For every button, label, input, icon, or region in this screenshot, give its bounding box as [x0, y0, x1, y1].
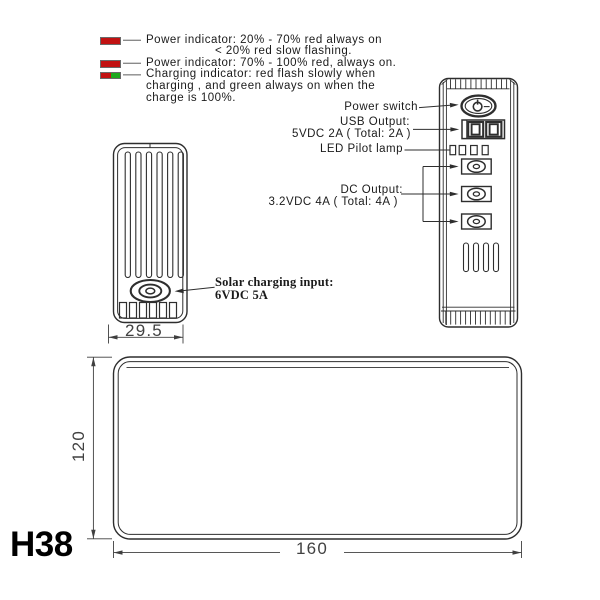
dc-output-jack-2 [462, 187, 492, 202]
led-pilot-lamps-icon [450, 146, 488, 155]
legend-dashes [123, 40, 141, 75]
dc-output-jack-1 [462, 159, 492, 174]
dc-output-label-line-1: DC Output: [340, 184, 403, 196]
technical-drawing-page: Power indicator: 20% - 70% red always on… [0, 0, 600, 600]
solar-input-label-line-1: Solar charging input: [215, 276, 334, 289]
legend-entry-1-line-2: < 20% red slow flashing. [215, 45, 352, 57]
usb-ports-icon [462, 120, 505, 139]
side-lower-slots [464, 243, 499, 272]
side-view-drawing [440, 79, 518, 328]
dc-output-label-line-2: 3.2VDC 4A ( Total: 4A ) [268, 196, 398, 208]
front-width-dimension-value: 29.5 [113, 322, 175, 339]
solar-input-label-line-2: 6VDC 5A [215, 289, 268, 302]
green-swatch-fill [111, 73, 121, 79]
dc-output-jack-3 [462, 214, 492, 229]
usb-output-label-line-1: USB Output: [340, 116, 410, 128]
solar-input-jack-icon [131, 280, 170, 302]
legend-entry-3-line-2: charging , and green always on when the [146, 80, 375, 92]
red-swatch-fill [101, 38, 120, 44]
front-vent-slots [125, 152, 183, 278]
legend-entry-3-line-1: Charging indicator: red flash slowly whe… [146, 68, 376, 80]
red-swatch-fill [101, 61, 120, 67]
usb-output-label-line-2: 5VDC 2A ( Total: 2A ) [292, 128, 411, 140]
model-code: H38 [10, 528, 73, 562]
top-view-drawing [114, 357, 522, 539]
side-bottom-hatch [441, 307, 516, 324]
top-view-height-dimension [87, 357, 112, 539]
legend-entry-2-line-1: Power indicator: 70% - 100% red, always … [146, 57, 396, 69]
red-swatch-fill [101, 73, 111, 79]
top-view-length-dimension-value: 160 [280, 540, 344, 557]
top-view-width-dimension-value: 120 [70, 418, 86, 474]
power-switch-icon [462, 96, 496, 117]
red-green-indicator-swatch [100, 72, 121, 80]
front-bottom-slots [120, 303, 177, 319]
power-switch-label: Power switch [344, 101, 418, 113]
front-view-drawing [114, 144, 188, 323]
legend-entry-3-line-3: charge is 100%. [146, 92, 236, 104]
red-indicator-swatch [100, 60, 121, 68]
legend-entry-1-line-1: Power indicator: 20% - 70% red always on [146, 34, 382, 46]
side-top-hatch [447, 79, 510, 89]
led-pilot-lamp-label: LED Pilot lamp [320, 143, 403, 155]
red-indicator-swatch [100, 37, 121, 45]
